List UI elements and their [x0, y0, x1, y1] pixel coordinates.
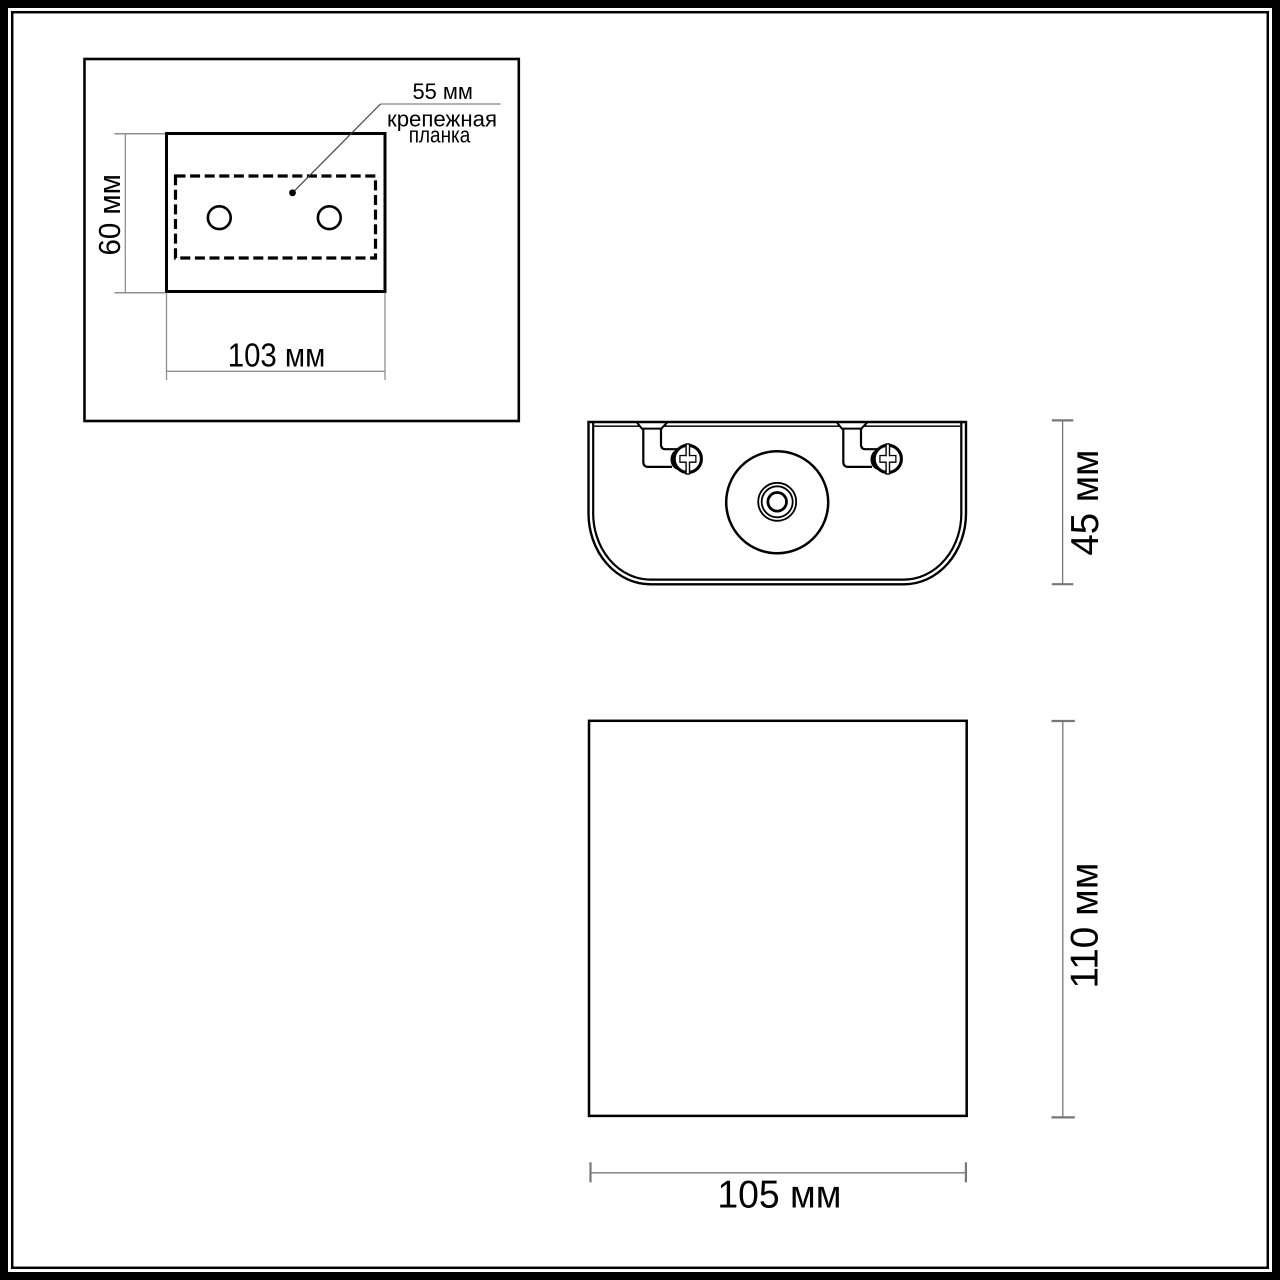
svg-text:110 мм: 110 мм: [1064, 863, 1107, 989]
svg-text:планка: планка: [409, 123, 471, 148]
svg-text:60 мм: 60 мм: [92, 174, 127, 256]
svg-text:103 мм: 103 мм: [228, 337, 326, 374]
svg-text:55 мм: 55 мм: [412, 79, 473, 104]
svg-text:105 мм: 105 мм: [717, 1173, 841, 1216]
svg-text:45 мм: 45 мм: [1064, 450, 1107, 556]
